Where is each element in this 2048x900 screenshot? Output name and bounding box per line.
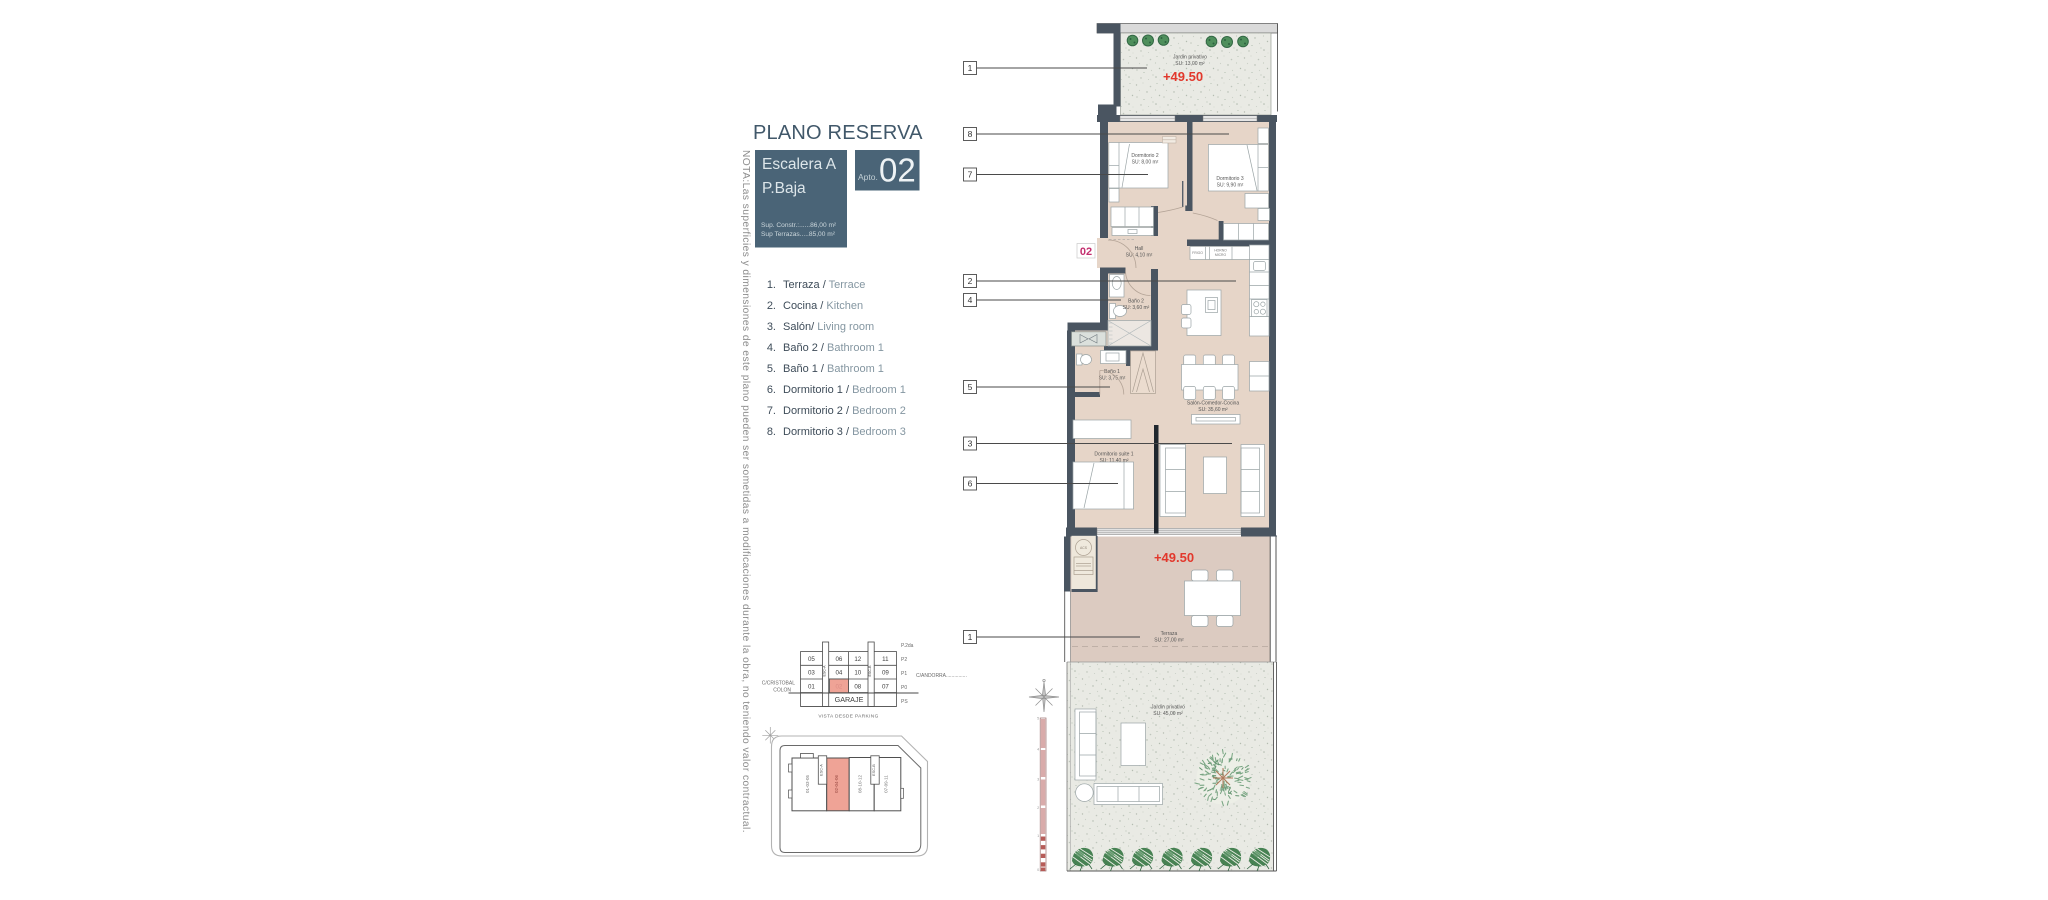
- svg-text:Baño 1 / Bathroom 1: Baño 1 / Bathroom 1: [783, 363, 884, 375]
- svg-text:4: 4: [1037, 748, 1039, 752]
- svg-text:Cocina / Kitchen: Cocina / Kitchen: [783, 300, 863, 312]
- svg-text:2.: 2.: [767, 300, 776, 312]
- svg-text:3: 3: [1037, 778, 1039, 782]
- svg-text:Baño 2 / Bathroom 1: Baño 2 / Bathroom 1: [783, 342, 884, 354]
- svg-text:7: 7: [968, 170, 973, 180]
- svg-text:SU: 13,00 m²: SU: 13,00 m²: [1175, 61, 1205, 67]
- svg-text:02: 02: [879, 152, 916, 189]
- svg-text:02: 02: [1080, 246, 1092, 258]
- svg-text:Dormitorio 2: Dormitorio 2: [1131, 153, 1158, 159]
- svg-text:PLANO RESERVA: PLANO RESERVA: [753, 122, 923, 144]
- svg-text:SU: 4,10 m²: SU: 4,10 m²: [1126, 253, 1153, 259]
- svg-text:VISTA DESDE PARKING: VISTA DESDE PARKING: [818, 714, 878, 720]
- svg-text:03: 03: [808, 670, 815, 677]
- svg-text:SU: 3,60 m²: SU: 3,60 m²: [1123, 305, 1150, 311]
- svg-text:MICRO: MICRO: [1215, 253, 1227, 257]
- svg-text:1: 1: [968, 632, 973, 642]
- svg-text:Hall: Hall: [1135, 246, 1144, 252]
- svg-text:Jardín privativo: Jardín privativo: [1151, 705, 1185, 711]
- svg-text:P.2da: P.2da: [901, 643, 914, 649]
- svg-text:12: 12: [854, 656, 861, 663]
- svg-text:Jardín privativo: Jardín privativo: [1173, 55, 1207, 61]
- svg-text:SU: 27,00 m²: SU: 27,00 m²: [1154, 638, 1184, 644]
- svg-text:1.: 1.: [767, 279, 776, 291]
- svg-text:SU: 9,90 m²: SU: 9,90 m²: [1217, 183, 1244, 189]
- svg-text:PS: PS: [901, 699, 908, 705]
- svg-text:07: 07: [882, 683, 889, 690]
- svg-text:1: 1: [1037, 834, 1039, 838]
- svg-text:ESC-A: ESC-A: [823, 665, 827, 677]
- svg-text:+49.50: +49.50: [1163, 69, 1203, 84]
- svg-text:08: 08: [854, 683, 861, 690]
- svg-text:Apto.: Apto.: [858, 172, 878, 182]
- svg-text:3.: 3.: [767, 321, 776, 333]
- svg-text:Terraza / Terrace: Terraza / Terrace: [783, 279, 865, 291]
- svg-text:+49.50: +49.50: [1154, 550, 1194, 565]
- svg-text:2: 2: [968, 276, 973, 286]
- svg-text:Dormitorio 3: Dormitorio 3: [1216, 176, 1243, 182]
- svg-text:4: 4: [968, 295, 973, 305]
- svg-text:Sup Terrazas.....85,00 m²: Sup Terrazas.....85,00 m²: [761, 231, 836, 238]
- svg-text:Dormitorio 2 / Bedroom 2: Dormitorio 2 / Bedroom 2: [783, 405, 906, 417]
- svg-text:Baño 2: Baño 2: [1128, 299, 1144, 305]
- svg-text:Dormitorio 1 / Bedroom 1: Dormitorio 1 / Bedroom 1: [783, 384, 906, 396]
- svg-text:4.: 4.: [767, 342, 776, 354]
- svg-text:09: 09: [882, 670, 889, 677]
- svg-text:Salón/ Living room: Salón/ Living room: [783, 321, 874, 333]
- svg-text:8.: 8.: [767, 426, 776, 438]
- svg-text:10: 10: [854, 670, 861, 677]
- svg-text:P.Baja: P.Baja: [762, 180, 806, 197]
- svg-text:8: 8: [968, 129, 973, 139]
- svg-text:04: 04: [835, 670, 842, 677]
- svg-text:1: 1: [968, 63, 973, 73]
- svg-text:GARAJE: GARAJE: [835, 695, 864, 704]
- svg-text:5: 5: [1037, 717, 1039, 721]
- svg-text:Dormitorio 3 / Bedroom 3: Dormitorio 3 / Bedroom 3: [783, 426, 906, 438]
- svg-text:02-04-06: 02-04-06: [834, 774, 839, 793]
- svg-text:C/ANDORRA...............: C/ANDORRA...............: [916, 673, 967, 679]
- svg-text:5: 5: [968, 382, 973, 392]
- svg-text:2: 2: [1037, 806, 1039, 810]
- svg-text:6: 6: [968, 479, 973, 489]
- svg-text:02: 02: [835, 683, 842, 690]
- svg-text:Escalera A: Escalera A: [762, 156, 837, 173]
- svg-text:5.: 5.: [767, 363, 776, 375]
- svg-text:0: 0: [1037, 868, 1039, 872]
- svg-text:SU: 3,75 m²: SU: 3,75 m²: [1099, 376, 1126, 382]
- svg-text:6.: 6.: [767, 384, 776, 396]
- svg-text:FRIGO: FRIGO: [1192, 251, 1203, 255]
- svg-text:HORNO: HORNO: [1214, 249, 1227, 253]
- svg-text:C/CRISTOBAL: C/CRISTOBAL: [762, 681, 795, 687]
- svg-text:Sup. Constr.:......86,00 m²: Sup. Constr.:......86,00 m²: [761, 222, 837, 229]
- svg-text:ESC-B: ESC-B: [872, 764, 876, 776]
- svg-text:Salón-Comedor-Cocina: Salón-Comedor-Cocina: [1187, 401, 1239, 407]
- svg-text:01: 01: [808, 683, 815, 690]
- svg-text:3: 3: [968, 439, 973, 449]
- svg-text:Terraza: Terraza: [1161, 631, 1178, 637]
- svg-text:SU: 45,00 m²: SU: 45,00 m²: [1153, 711, 1183, 717]
- svg-text:01-03-05: 01-03-05: [805, 774, 810, 793]
- svg-text:05: 05: [808, 656, 815, 663]
- svg-text:SU: 8,00 m²: SU: 8,00 m²: [1132, 160, 1159, 166]
- svg-text:07-09-11: 07-09-11: [884, 775, 889, 793]
- svg-text:P1: P1: [901, 671, 907, 677]
- svg-text:NOTA:Las superficies y dimensi: NOTA:Las superficies y dimensiones de es…: [740, 150, 751, 833]
- svg-text:ACS: ACS: [1080, 546, 1088, 550]
- svg-text:11: 11: [882, 656, 889, 663]
- svg-text:Dormitorio suite 1: Dormitorio suite 1: [1094, 452, 1133, 458]
- svg-text:ESC-B: ESC-B: [868, 665, 872, 677]
- svg-text:ESC-A: ESC-A: [820, 764, 824, 776]
- svg-text:08-10-12: 08-10-12: [858, 774, 863, 793]
- svg-text:7.: 7.: [767, 405, 776, 417]
- svg-text:SU: 35,60 m²: SU: 35,60 m²: [1198, 407, 1228, 413]
- svg-text:P0: P0: [901, 685, 907, 691]
- svg-text:06: 06: [835, 656, 842, 663]
- svg-text:P2: P2: [901, 657, 907, 663]
